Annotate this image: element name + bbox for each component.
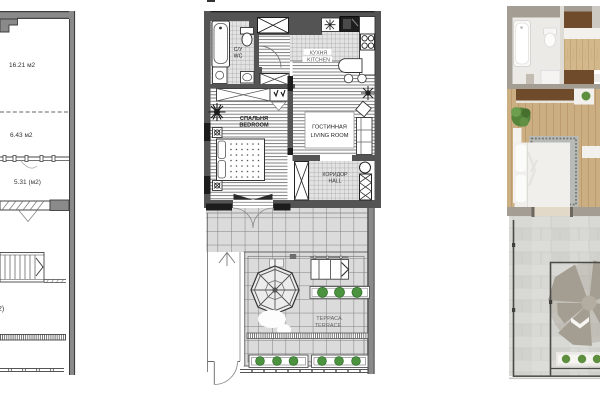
- svg-text:KITCHEN: KITCHEN: [307, 58, 330, 64]
- svg-text:WC: WC: [234, 54, 243, 60]
- svg-text:2): 2): [0, 306, 4, 313]
- svg-text:BEDROOM: BEDROOM: [239, 123, 269, 129]
- svg-text:ГОСТИННАЯ: ГОСТИННАЯ: [312, 125, 347, 131]
- svg-text:LIVING ROOM: LIVING ROOM: [311, 133, 349, 139]
- svg-text:С/У: С/У: [234, 47, 243, 53]
- svg-text:СПАЛЬНЯ: СПАЛЬНЯ: [240, 116, 268, 122]
- svg-text:КОРИДОР: КОРИДОР: [322, 172, 348, 178]
- svg-text:КУХНЯ: КУХНЯ: [310, 51, 328, 57]
- svg-text:ТЕРРАСА: ТЕРРАСА: [316, 316, 342, 322]
- svg-text:16.21 м2: 16.21 м2: [9, 62, 36, 69]
- svg-text:5.31 (м2): 5.31 (м2): [14, 179, 41, 186]
- svg-text:TERRACE: TERRACE: [315, 323, 342, 329]
- svg-text:6.43 м2: 6.43 м2: [10, 132, 33, 139]
- svg-text:HALL: HALL: [329, 179, 342, 185]
